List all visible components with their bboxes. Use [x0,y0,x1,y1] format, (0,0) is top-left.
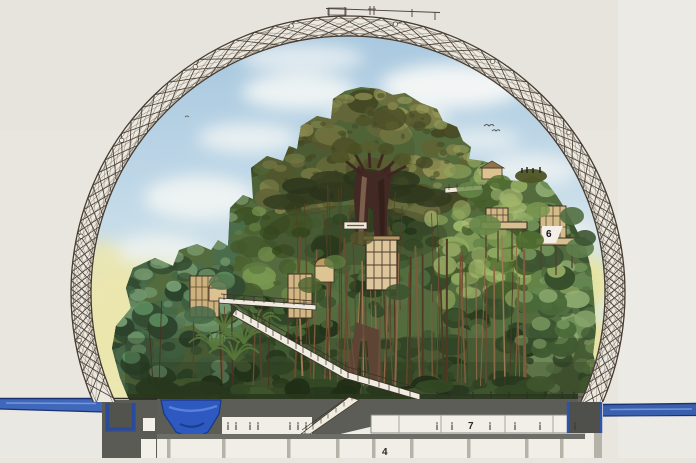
svg-text:7: 7 [468,421,474,432]
svg-text:4: 4 [382,447,388,458]
svg-text:6: 6 [546,229,552,240]
